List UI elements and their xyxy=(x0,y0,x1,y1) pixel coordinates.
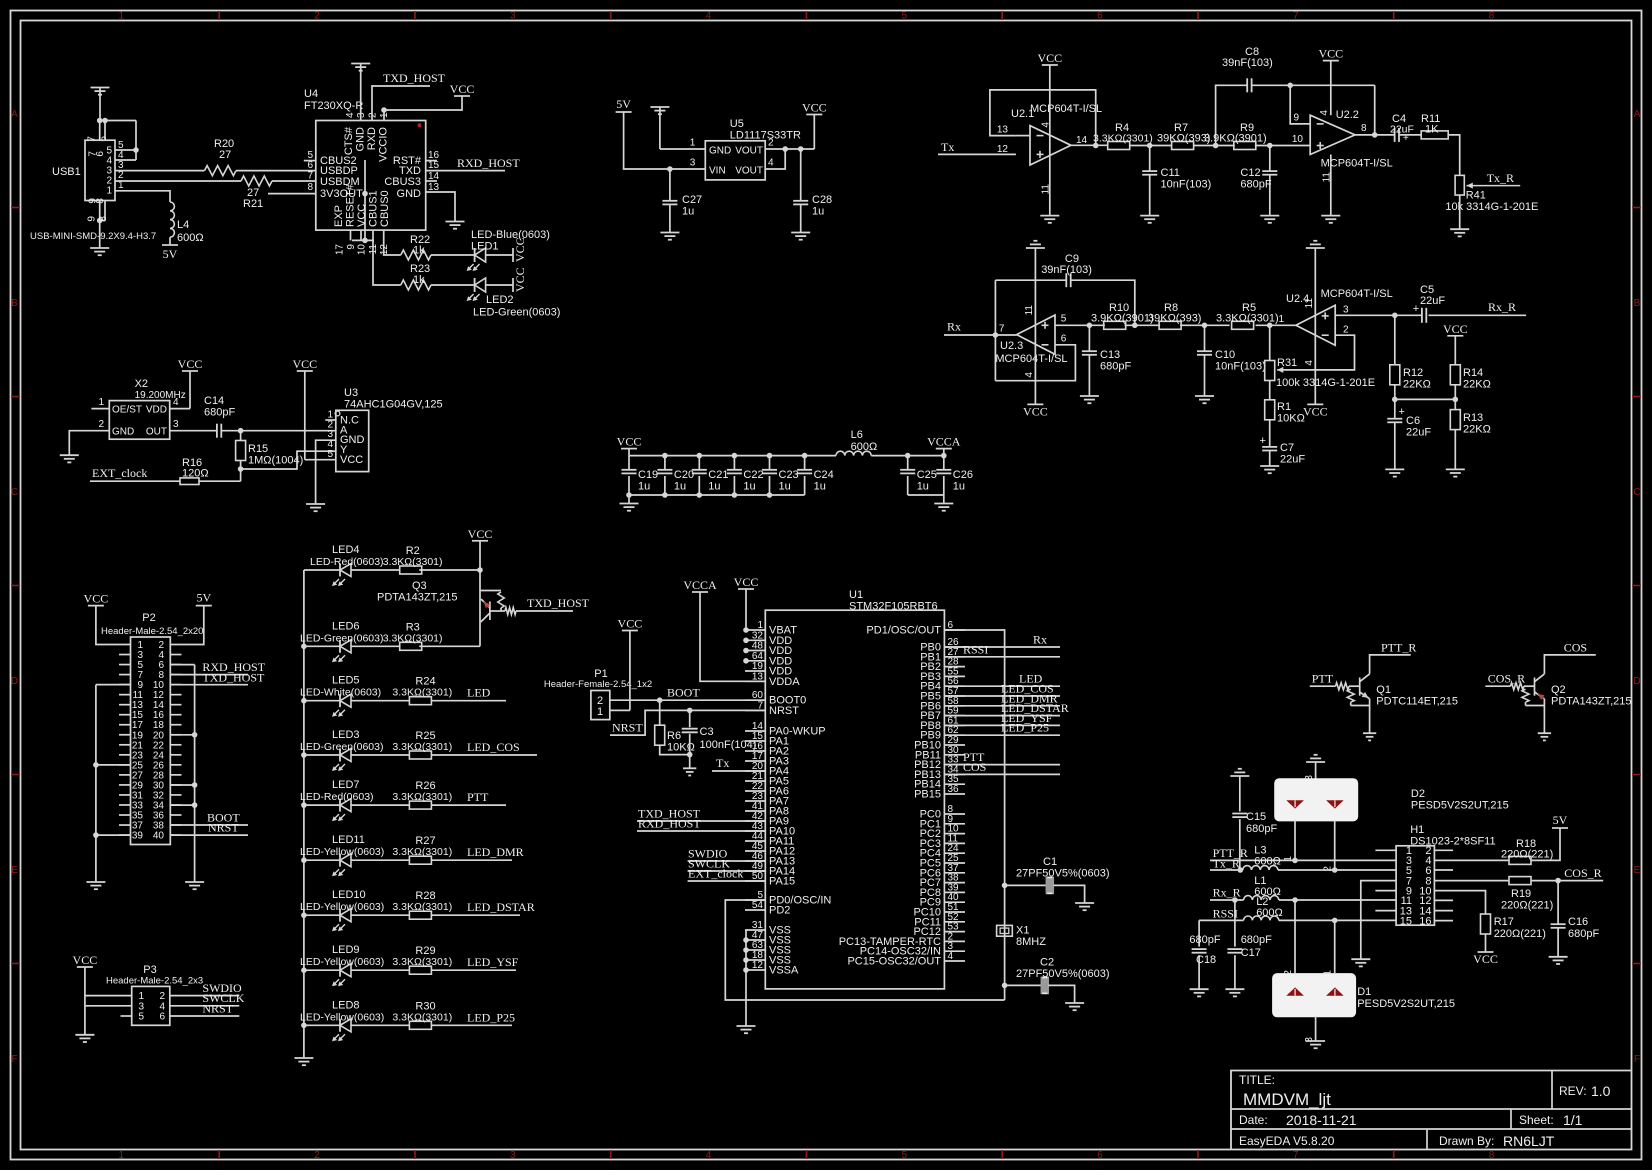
svg-text:3: 3 xyxy=(510,11,516,22)
svg-text:VDD: VDD xyxy=(146,405,167,416)
svg-text:GND: GND xyxy=(709,146,731,157)
svg-text:11: 11 xyxy=(1304,298,1315,309)
svg-text:U2.3: U2.3 xyxy=(1000,340,1023,352)
svg-text:L6: L6 xyxy=(851,429,863,441)
svg-text:Tx: Tx xyxy=(716,756,729,770)
svg-text:R15: R15 xyxy=(248,443,268,455)
svg-text:8: 8 xyxy=(307,182,313,193)
svg-text:F: F xyxy=(1634,1054,1640,1065)
svg-text:+: + xyxy=(1413,303,1419,315)
svg-text:1u: 1u xyxy=(682,206,694,218)
svg-text:R31: R31 xyxy=(1277,357,1297,369)
svg-text:1u: 1u xyxy=(674,481,686,493)
svg-text:R19: R19 xyxy=(1511,888,1531,900)
svg-text:1K: 1K xyxy=(1425,124,1439,136)
svg-text:LED-Green(0603): LED-Green(0603) xyxy=(300,632,383,644)
svg-text:7: 7 xyxy=(999,324,1005,335)
svg-text:U1: U1 xyxy=(849,589,863,601)
svg-text:39KΩ(393): 39KΩ(393) xyxy=(1157,133,1210,145)
svg-text:P3: P3 xyxy=(143,964,156,976)
svg-text:GND: GND xyxy=(355,127,367,152)
svg-text:RXD_HOST: RXD_HOST xyxy=(638,817,701,831)
svg-text:Tx_R: Tx_R xyxy=(1213,856,1240,870)
svg-text:C1: C1 xyxy=(1043,856,1057,868)
svg-text:D1: D1 xyxy=(1357,986,1371,998)
svg-text:Q3: Q3 xyxy=(412,580,427,592)
svg-text:1k: 1k xyxy=(413,274,425,286)
svg-text:10KΩ: 10KΩ xyxy=(1277,413,1305,425)
svg-text:C28: C28 xyxy=(812,194,832,206)
svg-text:7: 7 xyxy=(1293,1150,1299,1161)
svg-text:3.3KΩ(3301): 3.3KΩ(3301) xyxy=(392,956,452,968)
svg-text:680pF: 680pF xyxy=(1189,934,1220,946)
svg-text:4: 4 xyxy=(948,951,954,962)
svg-text:4: 4 xyxy=(768,158,774,169)
svg-text:B: B xyxy=(11,298,18,309)
svg-text:Tx: Tx xyxy=(941,140,954,154)
svg-text:5: 5 xyxy=(327,449,333,460)
svg-text:39KΩ(393): 39KΩ(393) xyxy=(1148,312,1201,324)
svg-text:5: 5 xyxy=(138,1012,144,1023)
svg-text:LED: LED xyxy=(467,686,491,700)
svg-text:C18: C18 xyxy=(1196,954,1216,966)
svg-text:27PF50V5%(0603): 27PF50V5%(0603) xyxy=(1016,968,1110,980)
svg-text:4: 4 xyxy=(173,397,179,408)
svg-text:1u: 1u xyxy=(708,481,720,493)
svg-text:Rx: Rx xyxy=(947,320,961,334)
svg-text:1u: 1u xyxy=(917,481,929,493)
svg-text:Date:: Date: xyxy=(1239,1113,1268,1127)
svg-text:LED5: LED5 xyxy=(332,675,360,687)
svg-text:VCC: VCC xyxy=(618,617,643,631)
svg-text:RXD_HOST: RXD_HOST xyxy=(457,156,520,170)
svg-text:6: 6 xyxy=(307,160,313,171)
svg-text:PC15-OSC32/OUT: PC15-OSC32/OUT xyxy=(847,956,941,968)
svg-text:MMDVM_ljt: MMDVM_ljt xyxy=(1243,1090,1331,1109)
svg-text:VSSA: VSSA xyxy=(769,965,799,977)
svg-text:EXP: EXP xyxy=(333,205,345,227)
svg-text:RXD: RXD xyxy=(366,127,378,150)
svg-text:2: 2 xyxy=(368,112,379,118)
svg-text:12: 12 xyxy=(997,144,1009,155)
svg-text:27: 27 xyxy=(219,149,231,161)
svg-text:COS: COS xyxy=(1564,640,1587,654)
svg-text:+: + xyxy=(1260,435,1266,447)
svg-text:REV:: REV: xyxy=(1559,1084,1587,1098)
svg-text:BOOT: BOOT xyxy=(667,686,700,700)
svg-text:1u: 1u xyxy=(814,481,826,493)
svg-text:9: 9 xyxy=(87,216,98,222)
svg-text:1: 1 xyxy=(1278,314,1284,325)
svg-text:22uF: 22uF xyxy=(1406,427,1431,439)
svg-text:D: D xyxy=(11,676,18,687)
svg-text:7: 7 xyxy=(307,171,313,182)
svg-text:R12: R12 xyxy=(1403,367,1423,379)
svg-text:OUT: OUT xyxy=(146,427,167,438)
svg-text:PD1/OSC/OUT: PD1/OSC/OUT xyxy=(866,625,941,637)
svg-text:Rx_R: Rx_R xyxy=(1488,300,1516,314)
svg-text:1: 1 xyxy=(98,397,104,408)
svg-text:14: 14 xyxy=(1076,135,1088,146)
svg-text:3.3KΩ(3301): 3.3KΩ(3301) xyxy=(392,791,452,803)
svg-text:C23: C23 xyxy=(779,469,799,481)
svg-text:PTT_R: PTT_R xyxy=(1381,640,1416,654)
svg-text:3.3KΩ(3301): 3.3KΩ(3301) xyxy=(383,632,443,644)
svg-text:12: 12 xyxy=(752,960,764,971)
svg-text:PDTA143ZT,215: PDTA143ZT,215 xyxy=(1551,696,1632,708)
svg-text:17: 17 xyxy=(335,244,346,256)
svg-text:Header-Male-2.54_2x20: Header-Male-2.54_2x20 xyxy=(101,626,203,637)
svg-text:PB15: PB15 xyxy=(914,789,941,801)
svg-text:U2.2: U2.2 xyxy=(1336,109,1359,121)
svg-text:600Ω: 600Ω xyxy=(1256,907,1283,919)
svg-text:3.3KΩ(3301): 3.3KΩ(3301) xyxy=(392,687,452,699)
svg-text:L4: L4 xyxy=(177,219,189,231)
svg-text:3.9KΩ(3901): 3.9KΩ(3901) xyxy=(1204,133,1267,145)
svg-text:VCC: VCC xyxy=(292,357,317,371)
svg-text:LED8: LED8 xyxy=(332,999,360,1011)
svg-text:OE/ST: OE/ST xyxy=(112,405,142,416)
svg-text:C12: C12 xyxy=(1240,167,1260,179)
svg-text:R6: R6 xyxy=(667,730,681,742)
svg-text:7: 7 xyxy=(757,700,763,711)
svg-text:LED1: LED1 xyxy=(471,241,499,253)
svg-text:1u: 1u xyxy=(812,206,824,218)
svg-text:6: 6 xyxy=(1061,334,1067,345)
svg-text:Rx_R: Rx_R xyxy=(1213,886,1241,900)
svg-text:Header-Male-2.54_2x3: Header-Male-2.54_2x3 xyxy=(106,976,203,987)
svg-text:Rx: Rx xyxy=(1033,633,1047,647)
svg-text:8: 8 xyxy=(1489,11,1495,22)
svg-text:VCC: VCC xyxy=(1023,404,1048,418)
svg-text:MCP604T-I/SL: MCP604T-I/SL xyxy=(1321,288,1393,300)
svg-text:P2: P2 xyxy=(142,612,155,624)
svg-text:680pF: 680pF xyxy=(1568,928,1599,940)
svg-text:C20: C20 xyxy=(674,469,694,481)
svg-text:3.3KΩ(3301): 3.3KΩ(3301) xyxy=(392,1011,452,1023)
svg-text:TXD_HOST: TXD_HOST xyxy=(202,670,265,684)
svg-text:LED7: LED7 xyxy=(332,779,360,791)
svg-text:C14: C14 xyxy=(204,395,224,407)
svg-text:680pF: 680pF xyxy=(1100,361,1131,373)
svg-text:22KΩ: 22KΩ xyxy=(1403,379,1431,391)
svg-text:11: 11 xyxy=(1322,172,1333,183)
svg-text:600Ω: 600Ω xyxy=(177,232,204,244)
svg-text:COS: COS xyxy=(963,760,986,774)
svg-text:C16: C16 xyxy=(1568,916,1588,928)
svg-text:C26: C26 xyxy=(953,469,973,481)
svg-text:22uF: 22uF xyxy=(1420,295,1445,307)
svg-text:VCC: VCC xyxy=(513,237,527,262)
svg-text:11: 11 xyxy=(1041,184,1052,195)
svg-text:1: 1 xyxy=(119,11,125,22)
svg-text:LED-Green(0603): LED-Green(0603) xyxy=(300,741,383,753)
svg-text:5V: 5V xyxy=(196,591,211,605)
svg-text:C15: C15 xyxy=(1246,811,1266,823)
svg-text:C6: C6 xyxy=(1406,415,1420,427)
svg-text:LED-Blue(0603): LED-Blue(0603) xyxy=(471,229,550,241)
svg-text:C2: C2 xyxy=(1040,957,1054,969)
svg-text:Tx_R: Tx_R xyxy=(1487,171,1514,185)
svg-text:3: 3 xyxy=(356,112,367,118)
svg-text:VCC: VCC xyxy=(468,527,493,541)
svg-text:USB-MINI-SMD-9.2X9.4-H3.7: USB-MINI-SMD-9.2X9.4-H3.7 xyxy=(30,231,156,242)
svg-text:PTT: PTT xyxy=(467,790,489,804)
svg-text:PDTC114ET,215: PDTC114ET,215 xyxy=(1376,696,1458,708)
svg-text:LED-Red(0603): LED-Red(0603) xyxy=(300,791,374,803)
svg-text:LED_YSF: LED_YSF xyxy=(467,955,519,969)
svg-text:1MΩ(1004): 1MΩ(1004) xyxy=(248,455,303,467)
svg-text:220Ω(221): 220Ω(221) xyxy=(1501,849,1553,861)
svg-text:10nF(103): 10nF(103) xyxy=(1161,179,1212,191)
svg-text:Q1: Q1 xyxy=(1376,684,1391,696)
svg-text:COS_R: COS_R xyxy=(1564,866,1601,880)
svg-text:EXT_clock: EXT_clock xyxy=(688,867,743,881)
svg-text:U3: U3 xyxy=(344,387,358,399)
svg-text:15: 15 xyxy=(428,160,440,171)
svg-text:PESD5V2S2UT,215: PESD5V2S2UT,215 xyxy=(1411,800,1509,812)
svg-text:5: 5 xyxy=(902,1150,908,1161)
svg-text:16: 16 xyxy=(1419,915,1431,927)
svg-text:GND: GND xyxy=(112,427,134,438)
svg-text:39: 39 xyxy=(132,831,144,842)
svg-text:EasyEDA V5.8.20: EasyEDA V5.8.20 xyxy=(1239,1134,1335,1148)
svg-text:2: 2 xyxy=(314,11,320,22)
svg-text:10KΩ: 10KΩ xyxy=(667,742,695,754)
svg-text:RESET#: RESET# xyxy=(345,183,357,227)
svg-text:Q2: Q2 xyxy=(1551,684,1566,696)
svg-text:15: 15 xyxy=(1400,915,1412,927)
svg-text:C25: C25 xyxy=(917,469,937,481)
svg-text:3.3KΩ(3301): 3.3KΩ(3301) xyxy=(383,556,443,568)
svg-text:4: 4 xyxy=(1024,372,1035,378)
svg-text:6: 6 xyxy=(159,1012,165,1023)
svg-text:C21: C21 xyxy=(708,469,728,481)
svg-text:220Ω(221): 220Ω(221) xyxy=(1494,928,1546,940)
svg-text:VCC: VCC xyxy=(1303,404,1328,418)
svg-text:27PF50V5%(0603): 27PF50V5%(0603) xyxy=(1016,867,1110,879)
svg-text:LED_P25: LED_P25 xyxy=(1001,721,1049,735)
svg-text:VCC: VCC xyxy=(450,82,475,96)
svg-text:74AHC1G04GV,125: 74AHC1G04GV,125 xyxy=(344,399,443,411)
svg-text:1u: 1u xyxy=(743,481,755,493)
svg-text:PA15: PA15 xyxy=(769,876,795,888)
svg-text:680pF: 680pF xyxy=(1246,823,1277,835)
svg-text:LED-White(0603): LED-White(0603) xyxy=(300,687,381,699)
svg-text:2: 2 xyxy=(768,138,774,149)
svg-text:LED2: LED2 xyxy=(486,294,514,306)
svg-text:E: E xyxy=(11,865,18,876)
svg-text:U4: U4 xyxy=(304,88,318,100)
svg-text:2018-11-21: 2018-11-21 xyxy=(1286,1112,1357,1128)
svg-text:VCC: VCC xyxy=(356,204,368,227)
svg-text:RSSI: RSSI xyxy=(963,642,988,656)
svg-text:3: 3 xyxy=(173,419,179,430)
svg-text:1: 1 xyxy=(119,1150,125,1161)
svg-text:E: E xyxy=(1634,865,1641,876)
svg-text:6: 6 xyxy=(1097,1150,1103,1161)
svg-text:D2: D2 xyxy=(1411,788,1425,800)
svg-text:VCC: VCC xyxy=(73,953,98,967)
svg-text:5V: 5V xyxy=(616,97,631,111)
svg-text:100k 3314G-1-201E: 100k 3314G-1-201E xyxy=(1276,377,1375,389)
svg-text:C24: C24 xyxy=(814,469,834,481)
svg-text:1: 1 xyxy=(597,706,603,718)
svg-text:LED3: LED3 xyxy=(332,729,360,741)
svg-text:Sheet:: Sheet: xyxy=(1519,1113,1554,1127)
svg-text:PD2: PD2 xyxy=(769,905,790,917)
svg-text:4: 4 xyxy=(1319,110,1330,116)
svg-text:VDDA: VDDA xyxy=(769,676,800,688)
svg-text:C: C xyxy=(1633,487,1640,498)
svg-text:VCCA: VCCA xyxy=(927,435,961,449)
svg-text:NRST: NRST xyxy=(208,821,239,835)
svg-text:C13: C13 xyxy=(1100,349,1120,361)
svg-text:2: 2 xyxy=(1343,325,1349,336)
svg-text:4: 4 xyxy=(1304,360,1315,366)
svg-text:3: 3 xyxy=(690,158,696,169)
svg-text:VCCA: VCCA xyxy=(683,578,717,592)
svg-text:C22: C22 xyxy=(743,469,763,481)
svg-text:680pF: 680pF xyxy=(1241,934,1272,946)
svg-text:LED-Yellow(0603): LED-Yellow(0603) xyxy=(300,956,384,968)
svg-text:8: 8 xyxy=(1361,123,1367,134)
svg-text:600Ω: 600Ω xyxy=(1254,856,1281,868)
svg-text:VCC: VCC xyxy=(802,101,827,115)
svg-text:TXD_HOST: TXD_HOST xyxy=(527,596,590,610)
svg-text:VIN: VIN xyxy=(709,166,726,177)
svg-text:EXT_clock: EXT_clock xyxy=(92,466,147,480)
svg-text:PDTA143ZT,215: PDTA143ZT,215 xyxy=(377,592,458,604)
svg-text:VCC: VCC xyxy=(84,592,109,606)
svg-text:39nF(103): 39nF(103) xyxy=(1041,264,1092,276)
svg-text:VCC: VCC xyxy=(1443,322,1468,336)
svg-text:10: 10 xyxy=(1292,134,1304,145)
svg-text:A: A xyxy=(11,109,18,120)
svg-text:3.3KΩ(3301): 3.3KΩ(3301) xyxy=(1093,133,1153,145)
svg-text:4: 4 xyxy=(1041,122,1052,128)
svg-text:C27: C27 xyxy=(682,194,702,206)
svg-text:1: 1 xyxy=(1323,970,1334,976)
svg-text:5: 5 xyxy=(902,11,908,22)
svg-text:6: 6 xyxy=(1097,11,1103,22)
svg-text:8: 8 xyxy=(1489,1150,1495,1161)
svg-text:C17: C17 xyxy=(1241,947,1261,959)
svg-text:1u: 1u xyxy=(953,481,965,493)
svg-text:LED_COS: LED_COS xyxy=(467,740,520,754)
svg-text:22uF: 22uF xyxy=(1280,454,1305,466)
svg-text:36: 36 xyxy=(948,784,960,795)
svg-text:1: 1 xyxy=(690,138,696,149)
svg-text:R13: R13 xyxy=(1463,412,1483,424)
svg-text:F: F xyxy=(11,1054,17,1065)
svg-text:LED_DSTAR: LED_DSTAR xyxy=(467,900,535,914)
svg-text:VCC: VCC xyxy=(734,575,759,589)
svg-text:C11: C11 xyxy=(1161,167,1180,179)
svg-text:4: 4 xyxy=(345,112,356,118)
svg-text:3.3KΩ(3301): 3.3KΩ(3301) xyxy=(392,741,452,753)
svg-text:X2: X2 xyxy=(135,378,148,390)
svg-text:3.3KΩ(3301): 3.3KΩ(3301) xyxy=(392,901,452,913)
svg-text:600Ω: 600Ω xyxy=(851,441,878,453)
svg-text:A: A xyxy=(1634,109,1641,120)
svg-text:LED11: LED11 xyxy=(332,834,365,846)
svg-text:7: 7 xyxy=(1293,11,1299,22)
svg-text:Drawn By:: Drawn By: xyxy=(1439,1134,1494,1148)
svg-text:1u: 1u xyxy=(638,481,650,493)
svg-text:C19: C19 xyxy=(638,469,658,481)
svg-text:40: 40 xyxy=(153,831,165,842)
svg-text:CBUS3: CBUS3 xyxy=(384,176,421,188)
svg-text:VOUT: VOUT xyxy=(735,146,763,157)
svg-text:NRST: NRST xyxy=(202,1001,233,1015)
svg-text:1u: 1u xyxy=(779,481,791,493)
svg-text:22uF: 22uF xyxy=(1390,124,1414,136)
svg-text:1/1: 1/1 xyxy=(1563,1112,1583,1128)
svg-text:13: 13 xyxy=(997,125,1009,136)
svg-text:220Ω(221): 220Ω(221) xyxy=(1501,900,1553,912)
svg-text:120Ω: 120Ω xyxy=(182,468,209,480)
svg-text:22KΩ: 22KΩ xyxy=(1463,379,1491,391)
svg-text:VCC: VCC xyxy=(513,267,527,292)
svg-text:U5: U5 xyxy=(730,118,744,130)
svg-text:2: 2 xyxy=(314,1150,320,1161)
svg-text:4: 4 xyxy=(706,1150,712,1161)
svg-text:LED_P25: LED_P25 xyxy=(467,1010,515,1024)
svg-text:3: 3 xyxy=(510,1150,516,1161)
svg-text:LED_DMR: LED_DMR xyxy=(467,845,524,859)
svg-text:10: 10 xyxy=(357,244,368,256)
svg-text:NRST: NRST xyxy=(769,705,799,717)
svg-text:3V3OUT: 3V3OUT xyxy=(320,188,363,200)
svg-text:680pF: 680pF xyxy=(1240,179,1271,191)
svg-text:C: C xyxy=(11,487,18,498)
svg-text:NRST: NRST xyxy=(612,721,643,735)
svg-text:FT230XQ-R: FT230XQ-R xyxy=(304,100,363,112)
svg-text:RN6LJT: RN6LJT xyxy=(1503,1133,1555,1149)
svg-text:C7: C7 xyxy=(1280,442,1294,454)
svg-text:TXD_HOST: TXD_HOST xyxy=(383,71,446,85)
svg-text:VCC: VCC xyxy=(178,357,203,371)
svg-text:CTS#: CTS# xyxy=(343,126,355,155)
svg-text:VCC: VCC xyxy=(1318,47,1343,61)
svg-text:R21: R21 xyxy=(243,198,263,210)
svg-text:Header-Female-2.54_1x2: Header-Female-2.54_1x2 xyxy=(544,679,652,690)
svg-text:6: 6 xyxy=(95,151,106,157)
svg-text:MCP604T-I/SL: MCP604T-I/SL xyxy=(995,353,1067,365)
svg-text:LED10: LED10 xyxy=(332,889,366,901)
svg-text:TITLE:: TITLE: xyxy=(1239,1073,1275,1087)
svg-text:R41: R41 xyxy=(1466,190,1486,202)
svg-text:LED-Red(0603): LED-Red(0603) xyxy=(310,556,384,568)
svg-text:C3: C3 xyxy=(700,726,714,738)
svg-text:R14: R14 xyxy=(1463,367,1483,379)
svg-text:4: 4 xyxy=(706,11,712,22)
svg-text:PTT: PTT xyxy=(1312,672,1334,686)
svg-text:3: 3 xyxy=(1343,305,1349,316)
svg-text:X1: X1 xyxy=(1016,925,1029,937)
svg-text:CBUS1: CBUS1 xyxy=(368,190,380,227)
svg-text:5V: 5V xyxy=(1553,813,1568,827)
svg-text:LED-Yellow(0603): LED-Yellow(0603) xyxy=(300,901,384,913)
svg-text:1k: 1k xyxy=(413,245,425,257)
svg-text:LD1117S33TR: LD1117S33TR xyxy=(730,130,801,142)
svg-text:3.3KΩ(3301): 3.3KΩ(3301) xyxy=(392,846,452,858)
svg-text:LED-Yellow(0603): LED-Yellow(0603) xyxy=(300,1011,384,1023)
svg-text:54: 54 xyxy=(752,900,764,911)
svg-text:R17: R17 xyxy=(1494,916,1514,928)
svg-text:H1: H1 xyxy=(1410,824,1424,836)
